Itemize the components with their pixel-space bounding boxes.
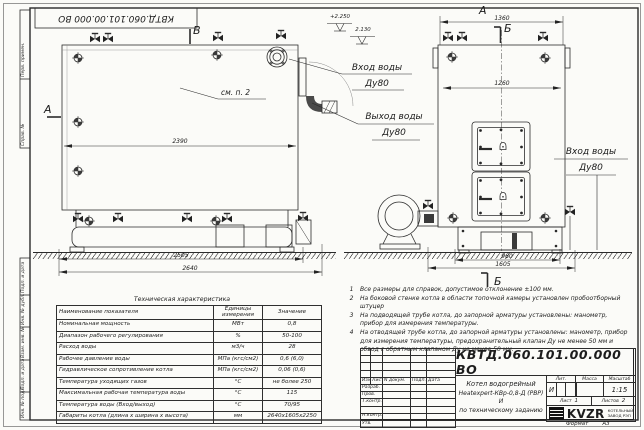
dim-2640: 2640 bbox=[168, 265, 212, 272]
margin-label: Справ. № bbox=[21, 124, 26, 146]
position-mark-icon bbox=[539, 212, 551, 224]
note-item: 3На подводящей трубе котла, до запорной … bbox=[347, 312, 629, 328]
position-mark-icon bbox=[446, 51, 458, 63]
blower-fan bbox=[378, 195, 438, 249]
water-inlet-flange bbox=[267, 47, 287, 67]
table-row: Температура воды (Вход/выход)°С70/95 bbox=[57, 400, 322, 412]
dim-1260: 1260 bbox=[484, 80, 520, 87]
drain-valve-icon bbox=[222, 214, 232, 223]
company-logo: KVZR КОТЕЛЬНЫЙ ЗАВОД РЭП bbox=[546, 405, 636, 422]
valve-icon bbox=[276, 31, 286, 40]
section-label-b: В bbox=[193, 24, 201, 37]
see-note-label: см. п. 2 bbox=[221, 88, 250, 97]
view-label-a: А bbox=[44, 103, 52, 116]
valve-icon bbox=[103, 34, 113, 43]
inlet-dn-label: Ду80 bbox=[344, 79, 410, 89]
side-view-linework bbox=[47, 24, 434, 277]
format-label: Формат А3 bbox=[566, 421, 610, 427]
tech-header-row: Наименование показателя Единицы измерени… bbox=[57, 306, 322, 320]
burner-valve-icon bbox=[423, 201, 433, 210]
drawing-sheet: КВТД.060.101.00.000 ВО Перв. примен. Спр… bbox=[0, 0, 644, 430]
outlet-label: Выход воды bbox=[356, 112, 432, 122]
position-mark-icon bbox=[72, 52, 84, 64]
tech-characteristics-table: Техническая характеристика Наименование … bbox=[56, 296, 308, 424]
valve-icon bbox=[443, 33, 453, 42]
table-row: Рабочее давление водыМПа (кгс/см2)0,6 (6… bbox=[57, 354, 322, 366]
drain-valve-icon bbox=[565, 207, 575, 216]
position-mark-icon bbox=[72, 116, 84, 128]
note-item: 2На боковой стенке котла в области топоч… bbox=[347, 295, 629, 311]
table-row: Расход водым3/ч28 bbox=[57, 343, 322, 355]
top-stamp: КВТД.060.101.00.000 ВО bbox=[35, 8, 197, 28]
margin-label: Подп. и дата bbox=[21, 262, 26, 293]
valve-icon bbox=[213, 33, 223, 42]
drain-valve-icon bbox=[73, 214, 83, 223]
dim-1360: 1360 bbox=[484, 15, 520, 22]
section-b-ticks-front bbox=[481, 27, 501, 287]
revision-grid: Изм.Лист N докум.Подп. Дата Разраб. Пров… bbox=[360, 348, 456, 428]
margin-label: Инв. № подл. bbox=[21, 386, 26, 418]
boiler-body-side bbox=[62, 45, 298, 210]
notes-list: 1Все размеры для справок, допустимое отк… bbox=[347, 286, 629, 355]
row-prov: Пров. bbox=[361, 392, 383, 399]
section-label-b-top: Б bbox=[504, 22, 512, 35]
dim-1605: 1605 bbox=[486, 261, 520, 268]
tech-table-title: Техническая характеристика bbox=[56, 296, 308, 305]
dim-2505: 2505 bbox=[160, 252, 202, 259]
row-razrab: Разраб. bbox=[361, 384, 383, 391]
margin-label: Инв. № дубл. bbox=[21, 294, 26, 325]
door-lock-icon bbox=[500, 193, 506, 200]
note-item: 1Все размеры для справок, допустимое отк… bbox=[347, 286, 629, 294]
position-mark-icon bbox=[211, 49, 223, 61]
col-header-name: Наименование показателя bbox=[57, 306, 214, 320]
col-header-value: Значение bbox=[263, 306, 322, 320]
elevation-2250: +2.250 bbox=[327, 14, 353, 20]
dim-2390: 2390 bbox=[160, 138, 200, 145]
upper-furnace-door bbox=[472, 122, 530, 171]
position-mark-icon bbox=[83, 215, 95, 227]
table-row: Номинальная мощностьМВт0,8 bbox=[57, 320, 322, 332]
door-lock-icon bbox=[500, 143, 506, 150]
valve-icon bbox=[538, 33, 548, 42]
scale-value: 1:15 bbox=[603, 382, 636, 397]
mass-value bbox=[575, 382, 604, 397]
margin-label: Взам. инв. № bbox=[21, 327, 26, 358]
outlet-dn-label: Ду80 bbox=[356, 128, 432, 138]
row-utv: Утв. bbox=[361, 420, 383, 427]
valve-icon bbox=[457, 33, 467, 42]
table-row: Максимальная рабочая температура воды°С1… bbox=[57, 389, 322, 401]
boiler-base-side bbox=[72, 227, 292, 247]
position-mark-icon bbox=[72, 165, 84, 177]
kvzr-emblem-icon bbox=[549, 407, 564, 420]
inlet-dn-label-front: Ду80 bbox=[556, 163, 626, 173]
elevation-2130: 2.130 bbox=[350, 27, 376, 33]
valve-icon bbox=[90, 34, 100, 43]
inlet-label: Вход воды bbox=[344, 63, 410, 73]
revision-header-row: Изм.Лист N докум.Подп. Дата bbox=[361, 377, 456, 384]
table-row: Диапазон рабочего регулирования%50-100 bbox=[57, 331, 322, 343]
product-name: Котел водогрейный Heatexpert-КВр-0,8-Д (… bbox=[455, 375, 547, 421]
position-mark-icon bbox=[447, 212, 459, 224]
lower-furnace-door bbox=[472, 172, 530, 221]
table-row: Габариты котла (длина х ширина х высота)… bbox=[57, 412, 322, 424]
table-row: Температура уходящих газов°Сне более 250 bbox=[57, 377, 322, 389]
row-nkontr: Н.контр. bbox=[361, 413, 383, 420]
title-block: Изм.Лист N докум.Подп. Дата Разраб. Пров… bbox=[360, 348, 634, 420]
row-tkontr: Т.контр. bbox=[361, 399, 383, 406]
doc-number: КВТД.060.101.00.000 ВО bbox=[455, 348, 636, 376]
inlet-label-front: Вход воды bbox=[556, 147, 626, 157]
kvzr-logo-text: KVZR bbox=[567, 407, 605, 421]
margin-label: Перв. примен. bbox=[21, 43, 26, 78]
position-mark-icon bbox=[539, 52, 551, 64]
drain-valve-icon bbox=[182, 214, 192, 223]
boiler-base-front bbox=[458, 227, 562, 253]
table-row: Гидравлическое сопротивление котлаМПа (к… bbox=[57, 366, 322, 378]
drain-valve-icon bbox=[113, 214, 123, 223]
dim-960: 960 bbox=[492, 253, 522, 260]
col-header-unit: Единицы измерения bbox=[214, 306, 263, 320]
